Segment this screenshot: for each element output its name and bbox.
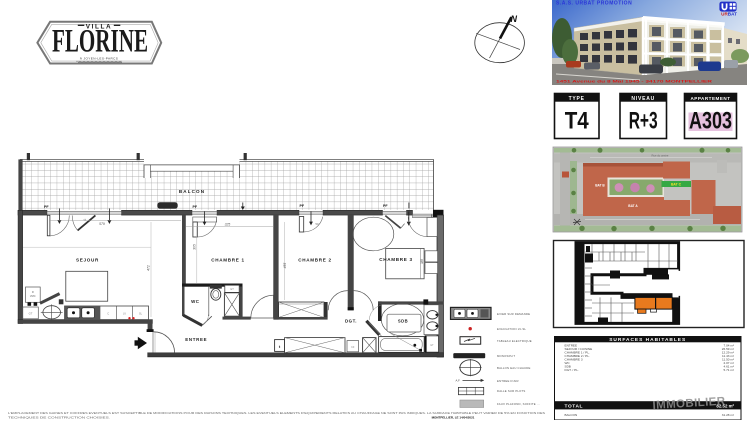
svg-text:T4: T4 — [565, 108, 590, 135]
svg-text:BAT A: BAT A — [628, 204, 638, 208]
svg-text:LV: LV — [123, 311, 126, 315]
svg-text:EVACUATION LV-SL: EVACUATION LV-SL — [497, 327, 526, 331]
svg-text:WC: WC — [191, 299, 200, 304]
svg-text:EVIER SUR DEMANDE: EVIER SUR DEMANDE — [497, 312, 530, 316]
svg-text:1451 Avenue du 8 Mai 1945 - 34: 1451 Avenue du 8 Mai 1945 - 34170 MONTPE… — [556, 80, 712, 84]
svg-text:ENTREE D'AIR: ENTREE D'AIR — [497, 379, 519, 383]
svg-text:CHAMBRE 2: CHAMBRE 2 — [298, 258, 332, 263]
svg-text:GT: GT — [430, 344, 434, 347]
svg-text:DALLE SUR PLOTS: DALLE SUR PLOTS — [497, 389, 526, 393]
svg-text:R: R — [32, 290, 34, 294]
svg-text:SDB: SDB — [398, 319, 408, 324]
svg-text:PF: PF — [300, 204, 305, 208]
svg-text:FAUX PLAFOND, SOFFITE ...: FAUX PLAFOND, SOFFITE ... — [497, 402, 540, 406]
svg-text:BALLON EAU CHAUDE: BALLON EAU CHAUDE — [497, 366, 531, 370]
svg-text:TYPE: TYPE — [569, 96, 585, 102]
svg-text:R+3: R+3 — [629, 108, 658, 135]
svg-text:TECHNIQUES DE CONSTRUCTION CHO: TECHNIQUES DE CONSTRUCTION CHOISIES. — [8, 415, 110, 419]
svg-text:579: 579 — [99, 222, 105, 226]
svg-text:305: 305 — [192, 244, 196, 250]
svg-text:GT: GT — [230, 288, 234, 291]
svg-text:C: C — [107, 311, 109, 315]
svg-text:5.71 m²: 5.71 m² — [724, 368, 735, 372]
svg-text:DGT.: DGT. — [345, 318, 357, 323]
svg-text:TOTAL: TOTAL — [565, 403, 584, 409]
svg-text:325: 325 — [225, 222, 231, 226]
svg-text:GT: GT — [29, 311, 33, 315]
svg-text:BALCON: BALCON — [179, 189, 205, 194]
svg-text:DGT. / PL.: DGT. / PL. — [565, 368, 579, 372]
svg-text:FLORINE: FLORINE — [52, 24, 148, 60]
svg-text:BAT: BAT — [728, 11, 737, 16]
svg-text:À JOYEN-LES-PARCS: À JOYEN-LES-PARCS — [80, 56, 118, 60]
svg-text:BAT B: BAT B — [595, 184, 605, 188]
svg-text:472: 472 — [147, 265, 151, 271]
svg-text:SEJOUR: SEJOUR — [76, 258, 99, 263]
svg-text:L'EMPLACEMENT DES GAINES ET CO: L'EMPLACEMENT DES GAINES ET COFFRES EVEN… — [8, 411, 545, 415]
svg-text:Rue du centre: Rue du centre — [652, 154, 669, 158]
svg-text:31.28 m²: 31.28 m² — [722, 413, 734, 417]
svg-text:385: 385 — [420, 259, 424, 265]
svg-text:PF: PF — [383, 204, 388, 208]
svg-text:PF: PF — [193, 205, 198, 209]
svg-text:N: N — [511, 14, 518, 24]
svg-text:VMC: VMC — [30, 294, 36, 298]
svg-text:TABLEAU ELECTRIQUE: TABLEAU ELECTRIQUE — [497, 339, 532, 343]
svg-text:BALCON: BALCON — [565, 413, 578, 417]
svg-text:S.A.S. URBAT PROMOTION: S.A.S. URBAT PROMOTION — [556, 1, 632, 7]
svg-text:MONTPELLIER, LE 14/04/2021: MONTPELLIER, LE 14/04/2021 — [432, 416, 475, 420]
svg-text:NIVEAU: NIVEAU — [631, 96, 655, 102]
svg-text:CF: CF — [351, 346, 355, 349]
svg-text:455: 455 — [283, 263, 287, 269]
svg-text:PF: PF — [44, 205, 49, 209]
svg-text:MONOSPLIT: MONOSPLIT — [497, 354, 515, 358]
svg-text:CHAMBRE 3: CHAMBRE 3 — [379, 257, 413, 262]
svg-text:BAT C: BAT C — [671, 183, 682, 187]
svg-text:SURFACES HABITABLES: SURFACES HABITABLES — [609, 337, 686, 343]
svg-text:SL: SL — [139, 311, 143, 315]
svg-text:CHAMBRE 1: CHAMBRE 1 — [211, 258, 245, 263]
svg-text:APPARTEMENT: APPARTEMENT — [690, 96, 730, 101]
svg-text:ENTREE: ENTREE — [185, 337, 207, 342]
svg-text:A.F: A.F — [456, 379, 461, 383]
svg-text:A303: A303 — [689, 108, 732, 135]
